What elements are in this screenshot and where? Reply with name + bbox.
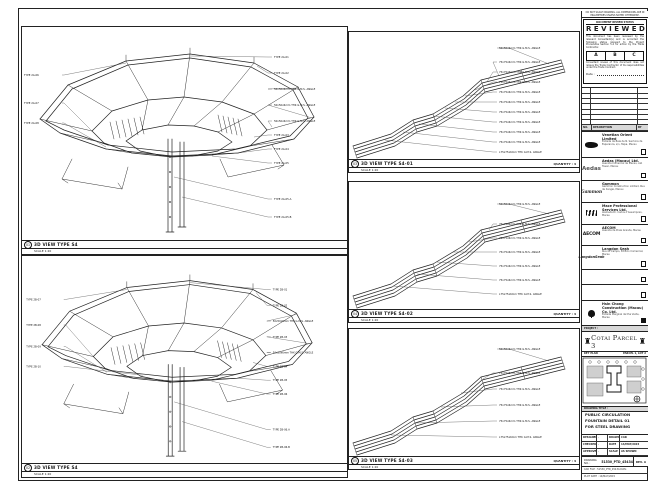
leader-label: 75x75x6mm THK G.M.S. ANGLE xyxy=(499,80,541,84)
leader-label: TYPE 2B-10 xyxy=(26,364,41,368)
drawing-title-line: FOR STEEL DRAWING xyxy=(582,424,648,430)
approved-value: - xyxy=(597,449,608,456)
designed-label: DESIGNED xyxy=(582,435,597,442)
leader-label: TYPE 2A-03 xyxy=(274,133,289,137)
sheet-note: DO NOT SCALE DRAWING. ALL DIMENSIONS ARE… xyxy=(582,11,648,18)
structure-3d-view-s4-b: TYPE 2B-01 TYPE 2B-02 50x50x6mm THK G.M.… xyxy=(22,256,347,463)
sheet-border: TYPE 2A-01 TYPE 2A-02 50x50x6mm THK G.M.… xyxy=(18,8,648,481)
leader-label: 50x50x6mm THK G.M.S. ANGLE xyxy=(273,319,314,323)
company-address: Estrada da Baia de N. Senhora da Esperan… xyxy=(602,141,647,147)
member-3d-view-s4-02: 50x50x6mm THK G.M.S. ANGLE 75x75x6mm THK… xyxy=(349,182,579,309)
leader-label: TYPE 2A-04 xyxy=(274,147,289,151)
title-block: DO NOT SCALE DRAWING. ALL DIMENSIONS ARE… xyxy=(581,11,648,480)
key-plan-map xyxy=(582,357,648,405)
leader-label: 75x75x6mm THK G.M.S. ANGLE xyxy=(499,264,541,268)
leader-label: TYPE 2B-05 xyxy=(273,378,288,382)
leader-label: 75x75x6mm THK G.M.S. ANGLE xyxy=(499,387,541,391)
revision-col-by: BY xyxy=(637,125,648,130)
leader-label: 75x75x6mm THK G.M.S. ANGLE xyxy=(499,140,541,144)
leader-label: 75x75x6mm THK G.M.S. ANGLE xyxy=(499,419,541,423)
company-address: Avenida da Praia Grande, Macau xyxy=(602,230,647,233)
plot-date-row: PLOT DATE : 14/MAY/2015 xyxy=(582,474,648,480)
leader-label: TYPE 2B-06 xyxy=(273,392,288,396)
detail-bubble: 01 xyxy=(24,241,32,249)
leader-label: TYPE 2A-02 xyxy=(274,71,289,75)
view-title: 3D VIEW TYPE S4-01 xyxy=(361,161,413,166)
view-quantity: QUANTITY : 4 xyxy=(554,459,576,463)
view-panel-01: TYPE 2A-01 TYPE 2A-02 50x50x6mm THK G.M.… xyxy=(21,26,348,255)
leader-label: TYPE 2A-05.B xyxy=(274,215,292,219)
leader-label: TYPE 2A-08 xyxy=(24,121,39,125)
leader-label: 75x75x6mm THK G.M.S. ANGLE xyxy=(499,120,541,124)
status-option-a: A xyxy=(587,52,606,60)
company-row-contractor: Hsin Chong Construction (Macau) Co. Ltd.… xyxy=(582,301,648,326)
leader-label: TYPE 2A-05 xyxy=(274,161,289,165)
leader-label: TYPE 2B-03 xyxy=(273,335,288,339)
revision-col-description: DESCRIPTION xyxy=(592,125,637,130)
revision-badge: REV. A xyxy=(633,457,648,466)
revision-header-row: NO. DESCRIPTION BY xyxy=(582,125,648,131)
cad-file-row: CAD FILE : 51530_PTD_45434.DWG xyxy=(582,467,648,474)
date-fill-line xyxy=(597,72,644,76)
leader-label: L75x75x6mm THK G.M.S. ANGLE xyxy=(499,150,542,154)
view-title-bar: 04 3D VIEW TYPE S4-02 QUANTITY : 4 xyxy=(349,309,579,317)
revision-value: A xyxy=(644,460,646,464)
detail-bubble: 04 xyxy=(351,310,359,318)
view-quantity: QUANTITY : 4 xyxy=(554,312,576,316)
view-panel-03: 50x50x6mm THK G.M.S. ANGLE 75x75x6mm THK… xyxy=(348,31,580,173)
company-checkbox xyxy=(641,194,647,200)
signature-fields: DESIGNED - DRAWN CAD CHECKED - DATE 14/M… xyxy=(582,435,648,457)
drawing-number-row: DRAWING NO. : 51530_PTD_45434 REV. A xyxy=(582,457,648,467)
date-label: Date : xyxy=(586,72,595,76)
review-stamp-box: DOCUMENT REVIEW STATUS REVIEWED This doc… xyxy=(583,19,647,84)
aedas-logo: Aedas xyxy=(582,158,601,181)
contractor-logo xyxy=(582,301,601,325)
company-row-langdon-seah: LangdonSeah Langdon Seah Rua do Campo, E… xyxy=(582,246,648,270)
view-panel-02: TYPE 2B-01 TYPE 2B-02 50x50x6mm THK G.M.… xyxy=(21,255,348,478)
revision-table: NO. DESCRIPTION BY xyxy=(582,88,648,132)
leader-label: 50x50x6mm THK G.M.S. ANGLE xyxy=(499,347,541,351)
view-title-bar: 01 3D VIEW TYPE S4 xyxy=(22,240,347,248)
revision-col-no: NO. xyxy=(582,125,592,130)
project-name: Cotai Parcel 3 xyxy=(591,334,639,350)
leader-label: 75x75x6mm THK G.M.S. ANGLE xyxy=(499,278,541,282)
leader-label: 75x75x6mm THK G.M.S. ANGLE xyxy=(499,60,541,64)
leader-label: TYPE 2B-06.A xyxy=(273,427,290,431)
venetian-logo xyxy=(582,132,601,156)
date-value: 14/MAY/2015 xyxy=(620,442,648,449)
banner-ornament-left-icon: ♜ xyxy=(584,338,591,346)
project-banner: ♜ Cotai Parcel 3 ♜ xyxy=(582,332,648,352)
view-title-bar: 02 3D VIEW TYPE S4 xyxy=(22,463,347,471)
status-option-c: C xyxy=(625,52,643,60)
leader-label: TYPE 2A-05.A xyxy=(274,197,292,201)
review-stamp: DOCUMENT REVIEW STATUS REVIEWED This doc… xyxy=(582,18,648,89)
view-title: 3D VIEW TYPE S4 xyxy=(34,242,78,247)
leader-label: 75x75x6mm THK G.M.S. ANGLE xyxy=(499,250,541,254)
view-title: 3D VIEW TYPE S4 xyxy=(34,465,78,470)
leader-label: TYPE 2A-06 xyxy=(24,73,39,77)
view-panel-05: 50x50x6mm THK G.M.S. ANGLE 75x75x6mm THK… xyxy=(348,328,580,470)
leader-label: 50x50x6mm THK G.M.S. ANGLE xyxy=(274,119,316,123)
drawing-number-value: 51530_PTD_45434 xyxy=(601,460,633,464)
leader-label: 75x75x6mm THK G.M.S. ANGLE xyxy=(499,236,541,240)
leader-label: TYPE 2B-01 xyxy=(273,288,288,292)
leader-label: TYPE 2B-06.B xyxy=(273,445,290,449)
drawn-value: CAD xyxy=(620,435,648,442)
view-scale: SCALE 1:20 xyxy=(349,464,579,470)
drawing-sheet-page: TYPE 2A-01 TYPE 2A-02 50x50x6mm THK G.M.… xyxy=(0,0,650,488)
company-checkbox xyxy=(641,261,647,267)
stamp-status-options: A B C xyxy=(586,51,644,61)
company-checkbox xyxy=(641,292,647,298)
view-scale: SCALE 1:20 xyxy=(349,317,579,323)
leader-label: 50x50x6mm THK G.M.S. ANGLE xyxy=(274,103,316,107)
company-row-mace: Mace Professional Services Ltd. Alameda … xyxy=(582,203,648,225)
view-title: 3D VIEW TYPE S4-03 xyxy=(361,458,413,463)
view-scale: SCALE 1:20 xyxy=(22,471,347,477)
view-title-bar: 05 3D VIEW TYPE S4-03 QUANTITY : 4 xyxy=(349,456,579,464)
leader-label: TYPE 2B-04 xyxy=(273,364,288,368)
key-plan: KEY PLAN PARCEL 1, LOT 2 xyxy=(582,352,648,407)
company-checkbox xyxy=(641,318,647,324)
view-title: 3D VIEW TYPE S4-02 xyxy=(361,311,413,316)
gammon-logo: Gammon xyxy=(582,181,601,202)
scale-value: AS SHOWN xyxy=(620,449,648,456)
key-plan-label: KEY PLAN xyxy=(584,352,598,357)
company-address: Rua do Campo, Edificio Comercial, Macau xyxy=(602,251,647,257)
leader-label: 50x50x6mm THK G.M.S. ANGLE xyxy=(273,351,314,355)
view-quantity: QUANTITY : 4 xyxy=(554,162,576,166)
company-address: Gammon Construction Limited, Rua de Xang… xyxy=(602,186,647,192)
company-row-empty xyxy=(582,285,648,301)
detail-bubble: 03 xyxy=(351,160,359,168)
leader-label: 75x75x6mm THK G.M.S. ANGLE xyxy=(499,110,541,114)
langdon-seah-logo: LangdonSeah xyxy=(582,246,601,269)
leader-label: 50x50x6mm THK G.M.S. ANGLE xyxy=(499,202,541,206)
company-row-aecom: AECOM AECOM Avenida da Praia Grande, Mac… xyxy=(582,225,648,247)
member-3d-view-s4-03: 50x50x6mm THK G.M.S. ANGLE 75x75x6mm THK… xyxy=(349,329,579,456)
company-address: Avenida Comercial de Macau, AIA Tower, M… xyxy=(602,163,647,169)
detail-bubble: 05 xyxy=(351,457,359,465)
stamp-title: REVIEWED xyxy=(586,25,644,35)
mace-logo xyxy=(582,203,601,224)
structure-3d-view-s4: TYPE 2A-01 TYPE 2A-02 50x50x6mm THK G.M.… xyxy=(22,27,347,240)
company-checkbox xyxy=(641,173,647,179)
banner-ornament-right-icon: ♜ xyxy=(639,338,646,346)
aecom-logo: AECOM xyxy=(582,225,601,246)
view-title-bar: 03 3D VIEW TYPE S4-01 QUANTITY : 4 xyxy=(349,159,579,167)
leader-label: 50x50x6mm THK G.M.S. ANGLE xyxy=(274,87,316,91)
checked-label: CHECKED xyxy=(582,442,597,449)
stamp-paragraph: Consultant review of this document does … xyxy=(586,62,644,70)
company-row-empty xyxy=(582,270,648,286)
key-plan-parcel: PARCEL 1, LOT 2 xyxy=(623,352,646,357)
leader-label: TYPE 2B-07 xyxy=(26,297,41,301)
revision-label: REV. xyxy=(636,460,643,464)
leader-label: 75x75x6mm THK G.M.S. ANGLE xyxy=(499,130,541,134)
leader-label: TYPE 2B-09 xyxy=(26,345,41,349)
leader-label: L75x75x6mm THK G.M.S. ANGLE xyxy=(499,435,542,439)
drawing-title-block: DRAWING TITLE : PUBLIC CIRCULATION FOUNT… xyxy=(582,407,648,435)
company-row-gammon: Gammon Gammon Gammon Construction Limite… xyxy=(582,181,648,203)
date-label: DATE xyxy=(608,442,620,449)
designed-value: - xyxy=(597,435,608,442)
leader-label: 75x75x6mm THK G.M.S. ANGLE xyxy=(499,70,541,74)
company-row-aedas: Aedas Aedas (Macau) Ltd. Avenida Comerci… xyxy=(582,158,648,182)
company-checkbox xyxy=(641,216,647,222)
leader-label: 50x50x6mm THK G.M.S. ANGLE xyxy=(499,46,541,50)
leader-label: 75x75x6mm THK G.M.S. ANGLE xyxy=(499,90,541,94)
leader-label: 75x75x6mm THK G.M.S. ANGLE xyxy=(499,403,541,407)
leader-label: TYPE 2B-02 xyxy=(273,303,288,307)
member-3d-view-s4-01: 50x50x6mm THK G.M.S. ANGLE 75x75x6mm THK… xyxy=(349,32,579,159)
drawing-number-label: DRAWING NO. : xyxy=(584,459,599,465)
scale-label: SCALE xyxy=(608,449,620,456)
company-checkbox xyxy=(641,149,647,155)
company-checkbox xyxy=(641,277,647,283)
leader-label: 75x75x6mm THK G.M.S. ANGLE xyxy=(499,100,541,104)
leader-label: 75x75x6mm THK G.M.S. ANGLE xyxy=(499,222,541,226)
company-checkbox xyxy=(641,238,647,244)
stamp-paragraph: This document has been reviewed by the r… xyxy=(586,36,644,50)
leader-label: TYPE 2B-08 xyxy=(26,323,41,327)
view-panel-04: 50x50x6mm THK G.M.S. ANGLE 75x75x6mm THK… xyxy=(348,181,580,323)
leader-label: TYPE 2A-01 xyxy=(274,55,289,59)
detail-bubble: 02 xyxy=(24,464,32,472)
status-option-b: B xyxy=(606,52,625,60)
stamp-date-row: Date : xyxy=(586,72,644,76)
view-scale: SCALE 1:20 xyxy=(22,248,347,254)
checked-value: - xyxy=(597,442,608,449)
approved-label: APPROVED xyxy=(582,449,597,456)
leader-label: L75x75x6mm THK G.M.S. ANGLE xyxy=(499,292,542,296)
drawn-label: DRAWN xyxy=(608,435,620,442)
leader-label: 75x75x6mm THK G.M.S. ANGLE xyxy=(499,371,541,375)
view-scale: SCALE 1:20 xyxy=(349,167,579,173)
company-row-venetian: Venetian Orient Limited Estrada da Baia … xyxy=(582,132,648,157)
leader-label: TYPE 2A-07 xyxy=(24,101,39,105)
